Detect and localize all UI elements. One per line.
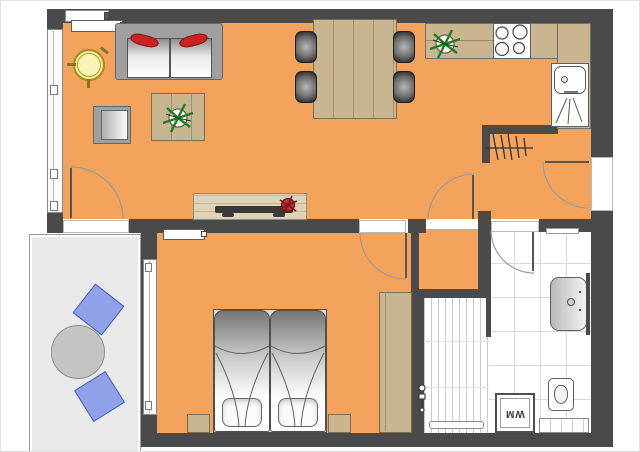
washbasin-dot xyxy=(579,291,581,293)
side-table-leg xyxy=(87,79,90,88)
window-mark xyxy=(50,169,58,179)
kitchen-sink-bowl xyxy=(554,66,586,94)
dining-chair xyxy=(393,71,415,103)
window-living-left-mullion xyxy=(53,31,54,211)
window-top-latch xyxy=(104,12,109,20)
side-table-top xyxy=(77,53,101,77)
wall-kitchen-hall-h xyxy=(482,125,558,134)
shower-drain xyxy=(429,421,484,429)
tv xyxy=(215,206,293,213)
dining-table xyxy=(313,19,397,119)
armchair-seat xyxy=(101,110,128,140)
window-living-left xyxy=(47,29,63,213)
radiator-bathroom xyxy=(539,418,589,433)
washing-machine: WM xyxy=(495,393,535,433)
balcony-table xyxy=(51,325,105,379)
window-bedroom-mullion xyxy=(149,261,150,413)
dining-chair xyxy=(295,31,317,63)
balcony-door-opening xyxy=(63,220,129,233)
radiator-bedroom xyxy=(163,229,205,240)
kitchen-counter-edge xyxy=(426,40,494,41)
toilet-bowl xyxy=(554,385,568,404)
coffee-table xyxy=(151,93,205,141)
wardrobe-door-line xyxy=(385,294,386,431)
entrance-door-opening xyxy=(591,157,613,211)
bathroom-door-opening xyxy=(491,221,539,232)
floor-plan: WM xyxy=(0,0,640,452)
bed-pillow-right xyxy=(278,398,318,427)
dining-chair xyxy=(393,31,415,63)
side-table-leg xyxy=(67,63,76,66)
wall-closet-right xyxy=(478,211,491,298)
wall-right xyxy=(591,9,613,447)
shower-area xyxy=(424,298,489,433)
washbasin-mount xyxy=(586,273,590,335)
washbasin-faucet xyxy=(567,298,575,306)
window-mark xyxy=(50,201,58,211)
window-mark xyxy=(145,401,152,410)
tv-stand xyxy=(222,213,234,217)
window-mark xyxy=(50,85,58,95)
closet-floor xyxy=(419,229,478,289)
radiator-bedroom-valve xyxy=(201,231,207,237)
bed-pillow-left xyxy=(222,398,262,427)
wall-bedroom-right xyxy=(411,289,424,437)
bedroom-door-opening xyxy=(359,220,406,233)
tv-stand xyxy=(273,213,285,217)
window-mark xyxy=(145,263,152,272)
washbasin-dot xyxy=(579,309,581,311)
window-bedroom xyxy=(143,259,157,415)
wardrobe xyxy=(379,292,412,433)
washing-machine-label: WM xyxy=(505,408,525,419)
bathroom-shelf xyxy=(546,228,579,234)
nightstand-right xyxy=(328,414,351,433)
wall-closet-left xyxy=(411,219,419,298)
nightstand-left xyxy=(187,414,210,433)
dining-chair xyxy=(295,71,317,103)
kitchen-sink-faucet xyxy=(561,76,568,83)
wall-kitchen-hall-v xyxy=(482,125,490,163)
wall-bottom xyxy=(141,433,613,447)
wall-shower-partition xyxy=(486,298,491,337)
stove xyxy=(493,23,531,59)
